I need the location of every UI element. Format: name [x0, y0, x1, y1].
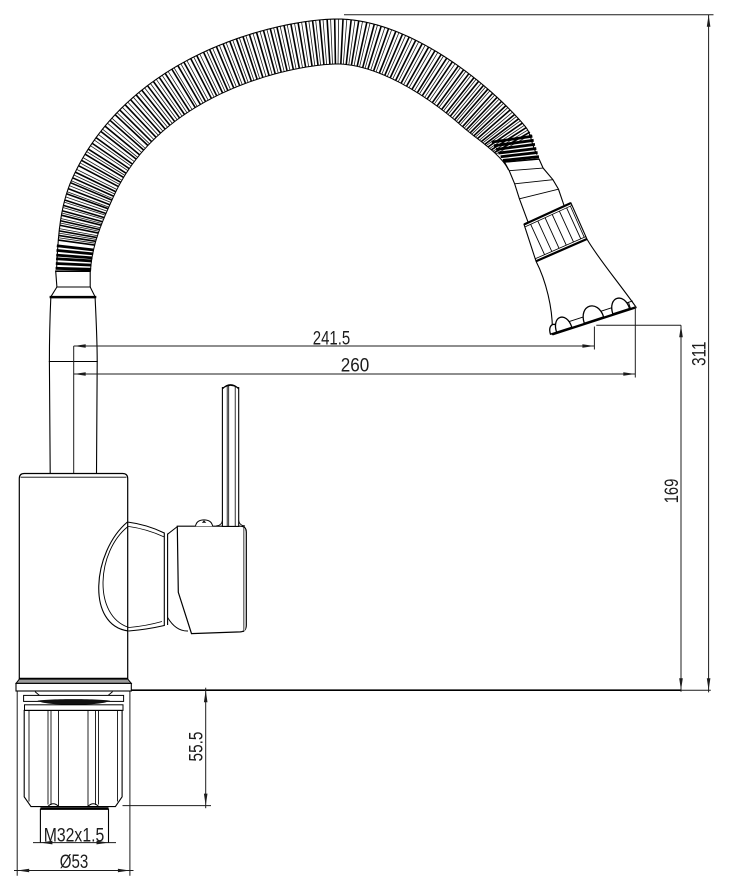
svg-text:169: 169	[662, 479, 683, 504]
svg-text:Ø53: Ø53	[60, 852, 89, 873]
svg-text:55.5: 55.5	[186, 732, 207, 762]
svg-text:311: 311	[690, 341, 711, 366]
svg-text:M32x1.5: M32x1.5	[44, 826, 105, 847]
svg-text:260: 260	[341, 356, 370, 377]
svg-text:241.5: 241.5	[313, 328, 351, 349]
